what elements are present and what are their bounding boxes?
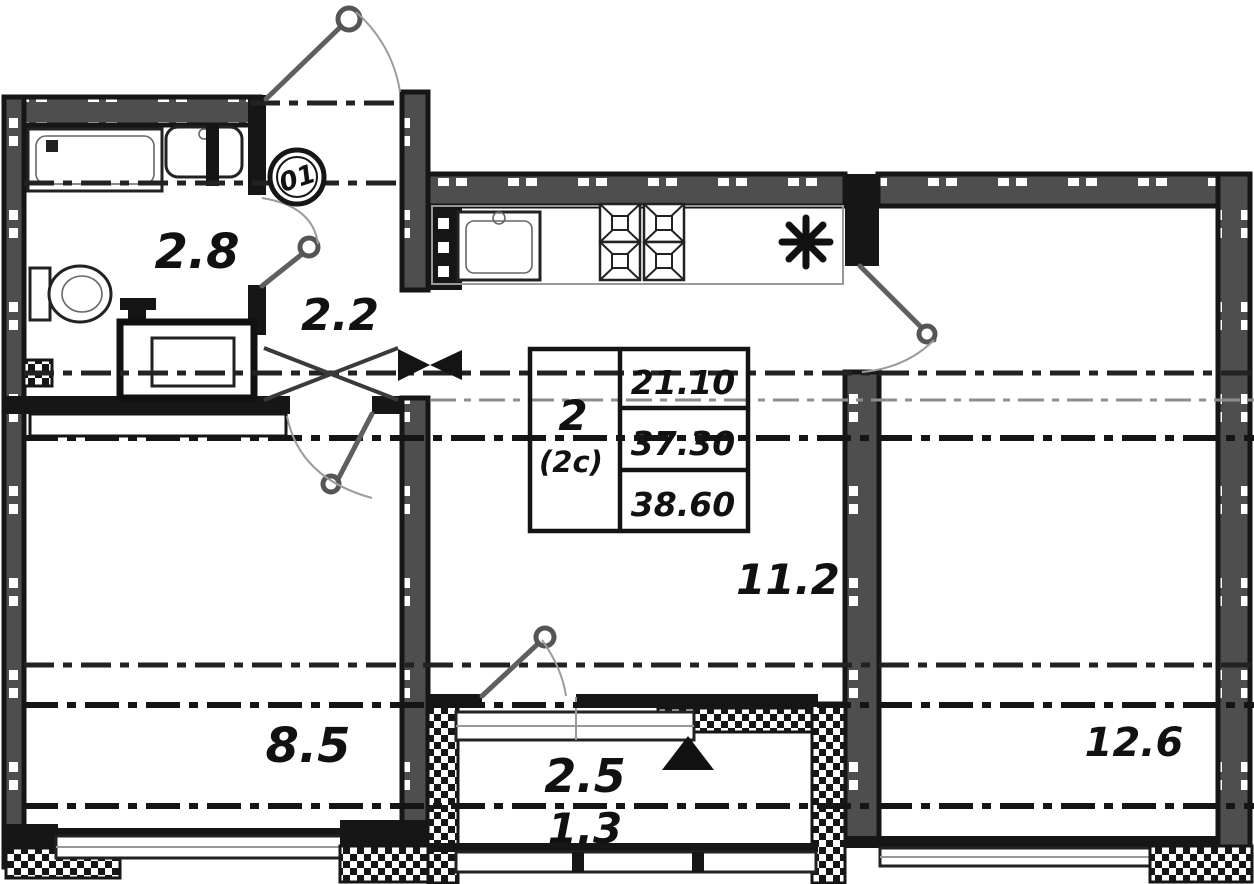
- wall-bath-hall-upper: [248, 95, 266, 195]
- bath-partition: [206, 124, 219, 186]
- entrance-badge: 01: [270, 150, 324, 204]
- vent-shaft-cell: [438, 218, 449, 229]
- wall-right-outer: [1218, 174, 1250, 874]
- wall-kitchen-window: [428, 174, 845, 206]
- wall-left-outer: [4, 97, 24, 867]
- door-handle: [300, 238, 318, 256]
- room-label-balcony: 2.5: [544, 749, 626, 803]
- washbasin: [166, 127, 242, 177]
- stamp-type-line1: 2: [558, 391, 587, 440]
- wall-living-left-lower: [402, 398, 428, 838]
- balcony-glazing-post: [572, 852, 584, 872]
- floor-plan-drawing: 01 2 (2с) 21.10 37.30 38.60 2.8 2.2 11.2…: [0, 0, 1254, 884]
- wardrobe: [30, 414, 286, 436]
- balcony-glazing: [456, 852, 816, 872]
- boiler-vent-icon: [782, 218, 830, 266]
- stamp-type-line2: (2с): [539, 445, 603, 479]
- stamp-floor-area: 37.30: [631, 424, 735, 463]
- hatch-balcony-left: [428, 703, 458, 883]
- wall-divider-lower: [845, 372, 879, 840]
- room-label-room-right: 12.6: [1085, 720, 1184, 766]
- room-label-bathroom: 2.8: [154, 224, 239, 280]
- stamp-living-area: 21.10: [631, 363, 735, 402]
- sink-pedestal-top: [120, 298, 156, 310]
- room-label-kitchen-living: 11.2: [736, 555, 840, 604]
- hatch-balcony-left-base: [340, 846, 432, 882]
- room-label-balcony-reduced: 1.3: [548, 804, 622, 853]
- toilet-tank: [30, 268, 50, 320]
- wall-divider-top-post: [845, 174, 879, 266]
- bathtub-drain: [46, 140, 58, 152]
- wall-rightroom-window: [878, 174, 1218, 206]
- wall-balcony-left-pier-cap: [340, 820, 432, 846]
- door-handle: [919, 326, 935, 342]
- vent-shaft-cell: [438, 242, 449, 253]
- floor-plan: 01 2 (2с) 21.10 37.30 38.60 2.8 2.2 11.2…: [0, 0, 1254, 884]
- room-label-hallway: 2.2: [301, 290, 379, 341]
- washing-machine-drum: [152, 338, 234, 386]
- vent-shaft-cell: [438, 266, 449, 277]
- stamp-total-area: 38.60: [631, 485, 735, 524]
- balcony-glazing-post: [692, 852, 704, 872]
- room-label-room-left: 8.5: [265, 718, 350, 774]
- wall-hall-living-upper: [402, 92, 428, 290]
- wall-top-bathroom: [4, 97, 260, 125]
- hatch-bottomright: [1150, 846, 1252, 882]
